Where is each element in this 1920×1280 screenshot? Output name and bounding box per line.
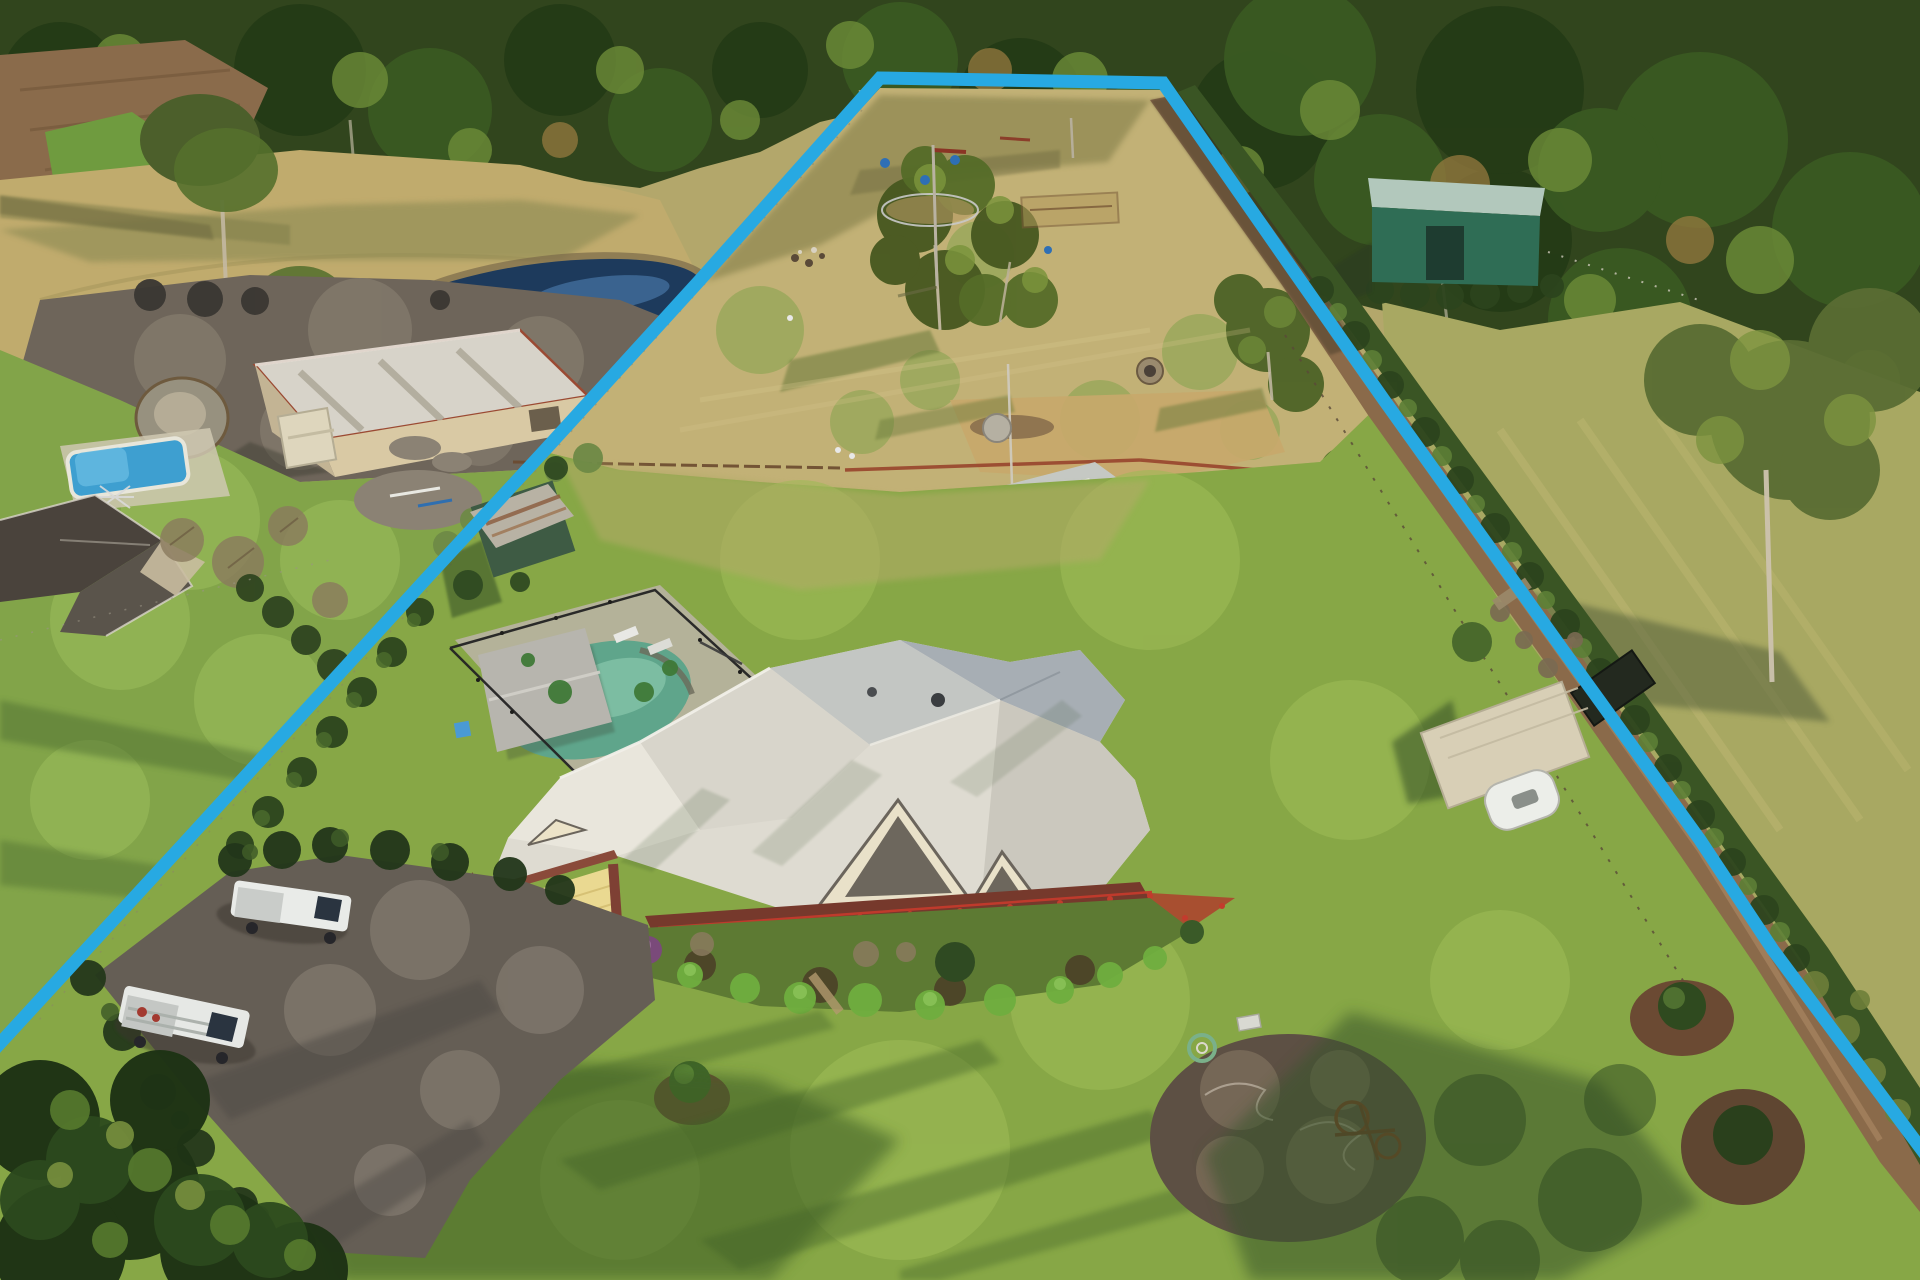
concrete-tank xyxy=(983,414,1011,442)
photo-canvas xyxy=(0,0,1920,1280)
parking-hedge-top xyxy=(263,831,301,869)
canopy-shadow-blobs xyxy=(1434,1074,1526,1166)
jump-rail xyxy=(1000,138,1030,140)
gum-pair-canopy-lit xyxy=(1264,296,1296,328)
jump-standards-white xyxy=(787,315,793,321)
boundary-hedge-lit xyxy=(346,692,362,708)
shed-shrubs xyxy=(510,572,530,592)
jump-barrels-blue xyxy=(950,155,960,165)
agapanthus-highlight xyxy=(793,985,807,999)
parking-hedge-top xyxy=(370,830,410,870)
bottom-tree-lit-yellow xyxy=(47,1162,73,1188)
canopy-shadow-blobs xyxy=(1538,1148,1642,1252)
pool-fence-posts xyxy=(510,710,514,714)
forest-canopy-lit xyxy=(720,100,760,140)
ute-2-cargo-red xyxy=(137,1007,147,1017)
yard-clutter xyxy=(1538,658,1558,678)
pad-white-board xyxy=(1237,1014,1261,1031)
corner-tree-lit xyxy=(210,1205,250,1245)
pool-plants xyxy=(662,660,678,676)
agapanthus-highlight xyxy=(1054,978,1066,990)
ute-2-wheels xyxy=(134,1036,146,1048)
bare-tree xyxy=(312,582,348,618)
pool-plants xyxy=(548,680,572,704)
verandah-posts-red xyxy=(1219,903,1225,909)
yard-clutter xyxy=(1567,632,1583,648)
ute-1-tray xyxy=(234,887,284,923)
gum-cluster-canopy-lit xyxy=(945,245,975,275)
corner-tree-lit xyxy=(92,1222,128,1258)
green-shed-hedge xyxy=(1400,279,1430,309)
parking-hedge-lit xyxy=(331,829,349,847)
canopy-shadow-blobs xyxy=(1376,1196,1464,1280)
boundary-hedge-lit xyxy=(376,652,392,668)
mulch-circle-bush xyxy=(1658,982,1706,1030)
chimney-flue xyxy=(867,687,877,697)
hedge-lower-yellow xyxy=(1850,990,1870,1010)
pool-blue-chair xyxy=(454,721,471,738)
corner-tree-lit xyxy=(50,1090,90,1130)
ute-1-windshield xyxy=(314,896,342,922)
neighbor-pool-shallow xyxy=(74,447,130,488)
bottom-tree-lit-yellow xyxy=(175,1180,205,1210)
jump-standards-white xyxy=(835,447,841,453)
ute-1-wheels xyxy=(246,922,258,934)
agapanthus-clumps xyxy=(1097,962,1123,988)
play-pad-small xyxy=(432,452,472,472)
bare-tree xyxy=(160,518,204,562)
parking-hedge-lit xyxy=(431,843,449,861)
green-shed-hedge xyxy=(1540,274,1564,298)
pool-plants xyxy=(634,682,654,702)
soil-heaps xyxy=(430,290,450,310)
scene-root xyxy=(0,0,1920,1280)
cream-shed xyxy=(278,408,336,468)
agapanthus-highlight xyxy=(684,964,696,976)
pool-fence-posts xyxy=(500,631,504,635)
soil-heaps xyxy=(187,281,223,317)
forest-canopy-dead xyxy=(1666,216,1714,264)
gum-pair-canopy xyxy=(1214,274,1266,326)
forest-canopy-lit xyxy=(332,52,388,108)
pool-fence-posts xyxy=(608,600,612,604)
olive-trees xyxy=(573,443,603,473)
pool-fence-posts xyxy=(738,670,742,674)
carport-tree xyxy=(1452,622,1492,662)
forest-canopy-lit xyxy=(1726,226,1794,294)
forest-canopy-lit xyxy=(1300,80,1360,140)
jump-rail xyxy=(933,150,966,152)
soil-heaps xyxy=(241,287,269,315)
conifer-shrub xyxy=(1180,920,1204,944)
mulch-circle-bush-lit xyxy=(1663,987,1685,1009)
gum-cluster-canopy xyxy=(870,235,920,285)
boundary-hedge-lit xyxy=(407,613,421,627)
ute-2-cargo-red xyxy=(152,1014,160,1022)
agapanthus-clumps xyxy=(848,983,882,1017)
big-gum-canopy-lit xyxy=(1824,394,1876,446)
chimney-flue xyxy=(931,693,945,707)
asphalt-light-patch xyxy=(420,1050,500,1130)
soil-heaps xyxy=(134,279,166,311)
agapanthus-clumps xyxy=(984,984,1016,1016)
ute-2-wheels xyxy=(216,1052,228,1064)
boundary-hedge-lit xyxy=(254,810,270,826)
parking-hedge-top xyxy=(545,875,575,905)
ute-1-wheels xyxy=(324,932,336,944)
jump-barrels-blue xyxy=(880,158,890,168)
canopy-shadow-blobs xyxy=(1584,1064,1656,1136)
pony-figures xyxy=(819,253,825,259)
jump-barrels-blue xyxy=(1044,246,1052,254)
lawn-light-patch xyxy=(1430,910,1570,1050)
jump-standards-white xyxy=(849,453,855,459)
boundary-hedge-lit xyxy=(316,732,332,748)
asphalt-light-patch xyxy=(370,880,470,980)
gum-cluster-canopy-lit xyxy=(986,196,1014,224)
gum-pair-canopy-lit xyxy=(1238,336,1266,364)
shed-shrubs xyxy=(544,456,568,480)
forest-canopy-lit xyxy=(826,21,874,69)
forest-canopy-lit xyxy=(596,46,644,94)
agapanthus-clumps xyxy=(1143,946,1167,970)
corner-tree-lit xyxy=(284,1239,316,1271)
dark-shrub xyxy=(935,942,975,982)
agapanthus-clumps xyxy=(730,973,760,1003)
big-gum-canopy-lit xyxy=(1730,330,1790,390)
boundary-shrub-row xyxy=(262,596,294,628)
shed-shrubs xyxy=(453,570,483,600)
twiggy-bushes xyxy=(690,932,714,956)
corner-tree-lit xyxy=(128,1148,172,1192)
gazebo-roof-top xyxy=(154,392,206,436)
pool-fence-posts xyxy=(554,616,558,620)
boundary-shrub-row xyxy=(236,574,264,602)
parking-hedge-lit xyxy=(101,1003,119,1021)
green-shed-hedge xyxy=(1436,282,1464,310)
aerial-property-photo xyxy=(0,0,1920,1280)
slope-tree-canopy xyxy=(174,128,278,212)
boundary-shrub-row xyxy=(291,625,321,655)
play-pad-small xyxy=(389,436,441,460)
pony-figures xyxy=(791,254,799,262)
round-pen-dirt xyxy=(886,196,974,224)
yard-clutter xyxy=(1515,631,1533,649)
forest-canopy-dark xyxy=(712,22,808,118)
big-gum-canopy-lit xyxy=(1696,416,1744,464)
bottom-tree-lit-yellow xyxy=(106,1121,134,1149)
pony-figures-light xyxy=(811,247,817,253)
pony-figures-light xyxy=(798,250,802,254)
asphalt-light-patch xyxy=(496,946,584,1034)
parking-hedge-top xyxy=(493,857,527,891)
forest-canopy-dead xyxy=(542,122,578,158)
parking-hedge-lit xyxy=(242,844,258,860)
boundary-hedge-lit xyxy=(286,772,302,788)
green-shed-door xyxy=(1426,226,1464,280)
pony-figures xyxy=(805,259,813,267)
agapanthus-highlight xyxy=(923,992,937,1006)
verandah-posts-red xyxy=(1182,915,1188,921)
mulch-circle-2-bush xyxy=(1713,1105,1773,1165)
pool-fence-posts xyxy=(476,678,480,682)
twiggy-bushes xyxy=(896,942,916,962)
pool-plants xyxy=(521,653,535,667)
twiggy-bushes xyxy=(853,941,879,967)
gum-cluster-canopy-lit xyxy=(1022,267,1048,293)
jump-barrels-blue xyxy=(920,175,930,185)
forest-canopy-lit xyxy=(1528,128,1592,192)
fire-pit-ash xyxy=(1144,365,1156,377)
